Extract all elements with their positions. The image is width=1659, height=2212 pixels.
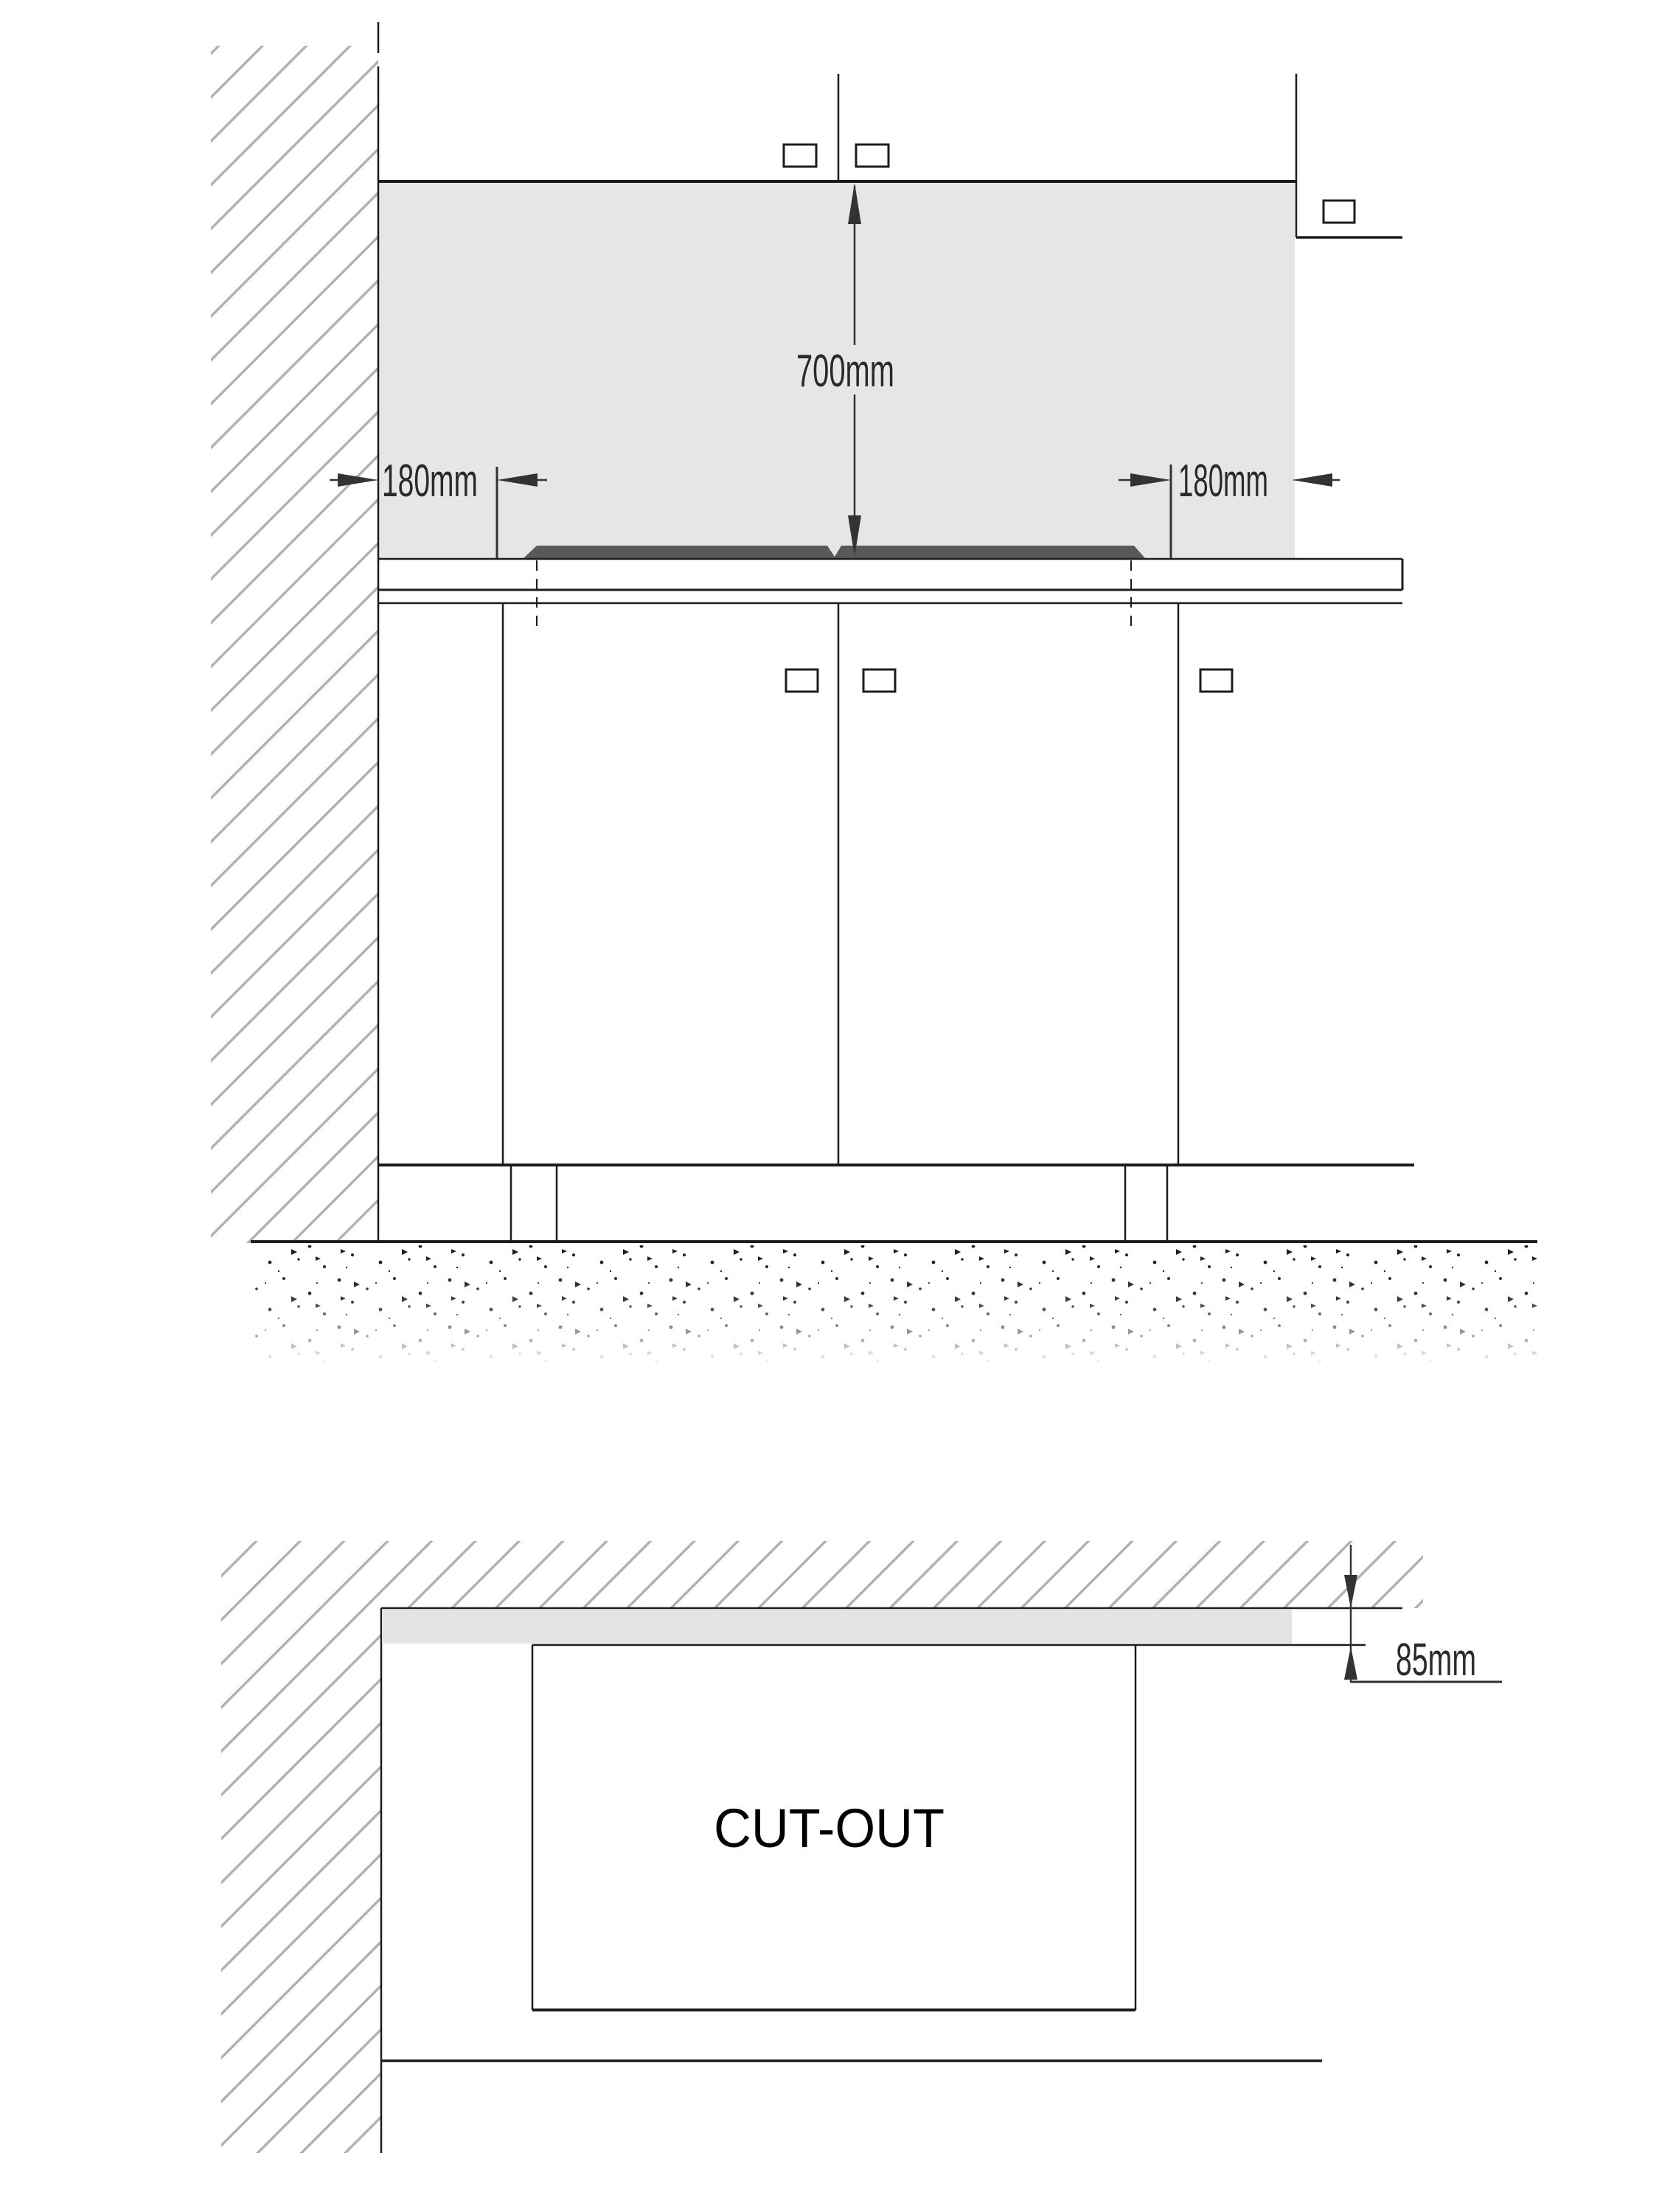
- cabinet-handle: [863, 669, 895, 692]
- counter-strip: [382, 1610, 1292, 1644]
- cabinet-handle: [856, 145, 888, 167]
- cabinet-handle: [784, 145, 816, 167]
- plan-view-diagram: CUT-OUT 85mm: [221, 1541, 1502, 2153]
- installation-diagram-page: 700mm 180mm 180mm: [0, 0, 1659, 2212]
- hob-installation-drawing: 700mm 180mm 180mm: [0, 0, 1659, 2212]
- floor-texture-fade: [254, 1245, 1537, 1366]
- wall-hatch: [211, 46, 378, 1243]
- cabinet-handle: [1200, 669, 1232, 692]
- arrow-left-icon: [1292, 473, 1332, 487]
- cutout-label: CUT-OUT: [714, 1798, 945, 1859]
- cabinet-handle: [1324, 201, 1354, 223]
- dim-180mm-right-label: 180mm: [1178, 456, 1268, 507]
- dim-180mm-left-label: 180mm: [382, 456, 478, 507]
- front-view-diagram: 700mm 180mm 180mm: [211, 22, 1537, 1366]
- arrow-up-icon: [1344, 1646, 1357, 1680]
- cabinet-leg: [511, 1165, 557, 1242]
- dim-700mm-label: 700mm: [796, 346, 894, 397]
- cabinet-leg: [1125, 1165, 1167, 1242]
- dim-85mm-label: 85mm: [1396, 1635, 1476, 1686]
- cabinet-handle: [786, 669, 818, 692]
